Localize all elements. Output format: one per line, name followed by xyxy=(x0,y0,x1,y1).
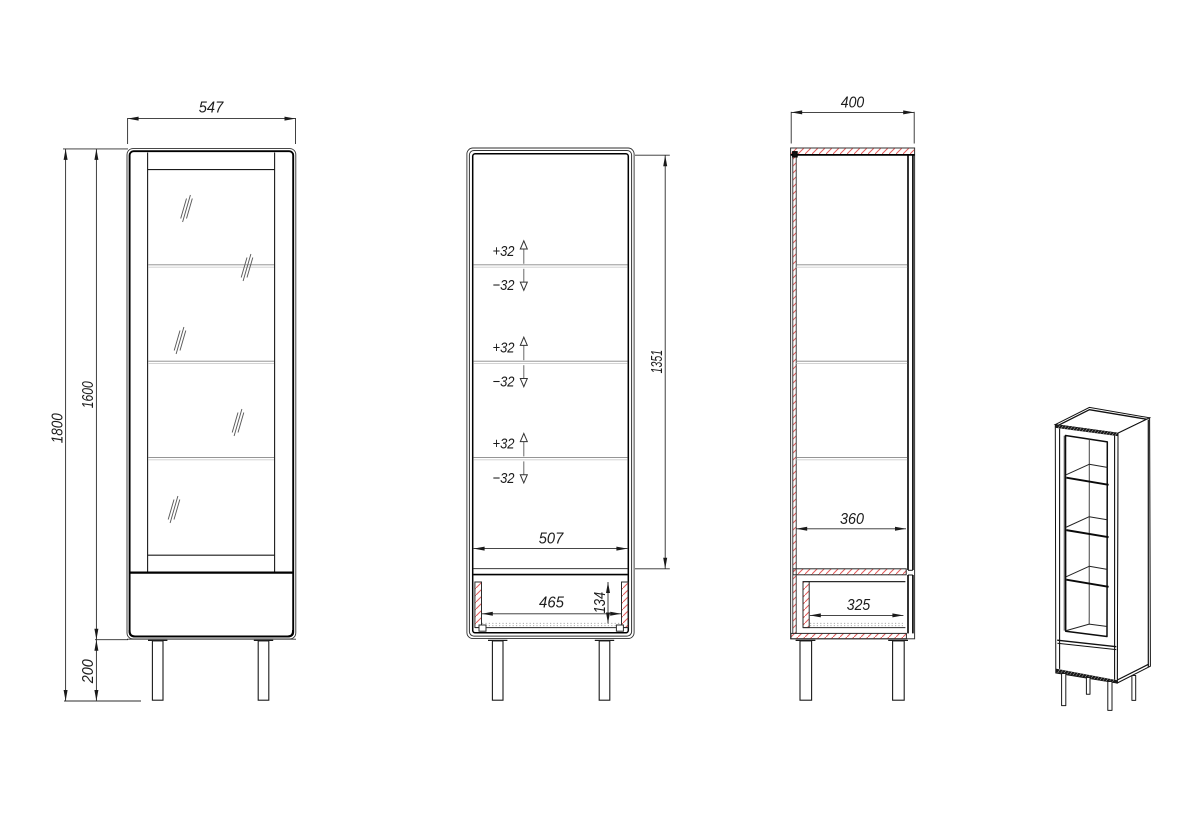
svg-text:360: 360 xyxy=(840,511,864,528)
svg-text:+32: +32 xyxy=(493,339,516,356)
svg-text:1600: 1600 xyxy=(80,381,97,408)
svg-text:200: 200 xyxy=(80,659,97,684)
svg-text:1351: 1351 xyxy=(649,350,666,374)
svg-text:507: 507 xyxy=(539,530,565,547)
svg-text:400: 400 xyxy=(841,95,865,112)
svg-text:+32: +32 xyxy=(493,436,516,453)
svg-text:+32: +32 xyxy=(493,243,516,260)
svg-text:325: 325 xyxy=(847,597,871,614)
svg-text:547: 547 xyxy=(199,100,225,117)
svg-text:1800: 1800 xyxy=(49,413,66,443)
svg-text:465: 465 xyxy=(539,595,564,612)
svg-text:−32: −32 xyxy=(493,374,516,391)
svg-text:−32: −32 xyxy=(493,277,516,294)
svg-text:134: 134 xyxy=(592,592,609,614)
svg-text:−32: −32 xyxy=(493,470,516,487)
